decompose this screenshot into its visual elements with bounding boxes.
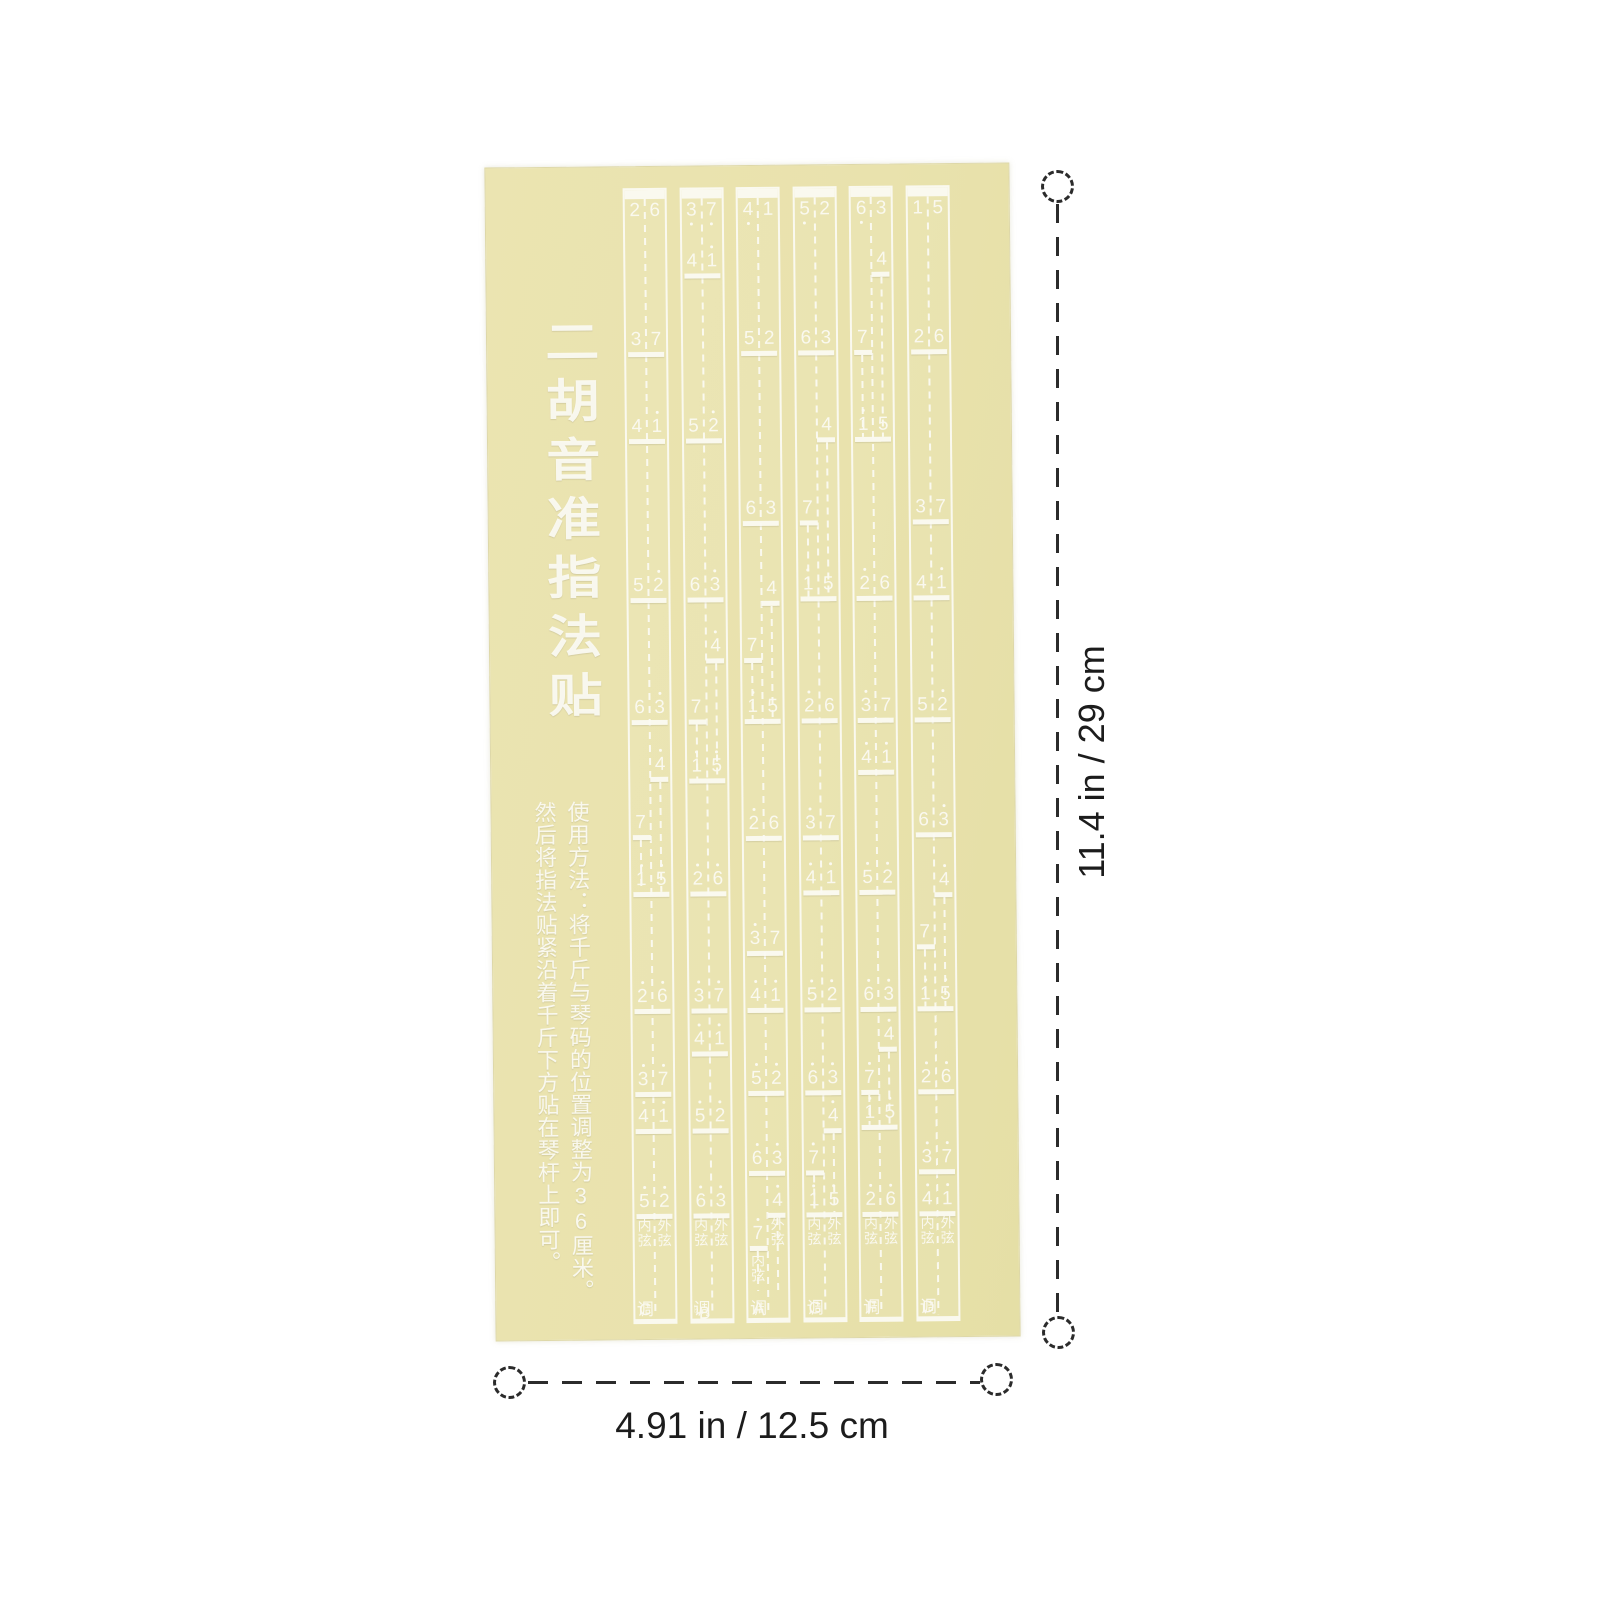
note-number: 6 [881, 1190, 901, 1210]
position-bar [746, 836, 782, 841]
note-number: 4 [627, 417, 647, 437]
note-row: 26 [861, 1190, 901, 1210]
octave-dot [661, 981, 664, 984]
note-row: 37 [633, 1070, 673, 1090]
note-number: 4 [767, 1191, 787, 1211]
note-row: 37 [911, 497, 951, 517]
position-bar [919, 1169, 955, 1174]
string-label-outer-text: 外弦 [881, 1216, 901, 1246]
fingering-strip-6: 1526374152634715263741内弦外弦D调 [906, 185, 961, 1321]
note-number: 6 [747, 1149, 767, 1169]
octave-dot [774, 980, 777, 983]
string-label-outer-text: 外弦 [824, 1216, 844, 1246]
string-label-outer-text: 外弦 [711, 1217, 731, 1247]
position-bar [918, 1089, 954, 1094]
position-bar [635, 1092, 671, 1097]
octave-dot [888, 1097, 891, 1100]
octave-dot [697, 981, 700, 984]
note-row: 4 [859, 1025, 899, 1045]
position-bar [747, 951, 783, 956]
string-label-outer-text: 外弦 [654, 1218, 674, 1248]
position-bar [691, 1051, 727, 1056]
fingering-strip-4: 5263471526374152634715内弦外弦G调 [792, 186, 847, 1322]
note-number: 1 [631, 870, 651, 890]
note-number: 2 [822, 985, 842, 1005]
note-number: 7 [931, 497, 951, 517]
string-label-inner-text: 内弦 [861, 1216, 881, 1246]
note-number: 2 [710, 1106, 730, 1126]
note-number: 4 [823, 1106, 843, 1126]
note-number: 3 [911, 497, 931, 517]
note-number: 3 [745, 929, 765, 949]
position-bar [911, 349, 947, 354]
note-row: 63 [747, 1149, 787, 1169]
note-number: 7 [748, 1224, 768, 1244]
octave-dot [752, 808, 755, 811]
note-row: 15 [915, 984, 955, 1004]
dimension-endpoint-circle-left [493, 1366, 526, 1399]
octave-dot [887, 979, 890, 982]
position-bar [745, 719, 781, 724]
note-number: 7 [701, 200, 721, 220]
note-number: 3 [823, 1068, 843, 1088]
note-number: 4 [738, 200, 758, 220]
note-row: 41 [682, 251, 722, 271]
octave-dot [658, 749, 661, 752]
note-number: 2 [703, 416, 723, 436]
note-number: 6 [819, 696, 839, 716]
note-number: 7 [937, 1147, 957, 1167]
octave-dot [810, 979, 813, 982]
string-label-outer-text: 外弦 [768, 1217, 788, 1247]
note-number: 3 [856, 696, 876, 716]
octave-dot [756, 1218, 759, 1221]
position-bar [860, 890, 896, 895]
key-suffix: 调 [635, 1300, 655, 1320]
note-number: 1 [702, 251, 722, 271]
note-number: 2 [861, 1190, 881, 1210]
note-number: 3 [871, 199, 891, 219]
position-bar [690, 891, 726, 896]
note-number: 5 [746, 1069, 766, 1089]
note-number: 2 [855, 574, 875, 594]
width-dimension-line [528, 1381, 980, 1384]
qianjin-header-bar [738, 189, 778, 198]
note-number: 2 [654, 1192, 674, 1212]
octave-dot [868, 1097, 871, 1100]
note-number: 2 [932, 695, 952, 715]
note-number: 2 [688, 869, 708, 889]
note-row: 15 [804, 1190, 844, 1210]
note-number: 4 [872, 250, 892, 270]
string-label-inner-text: 内弦 [634, 1218, 654, 1248]
position-bar [686, 438, 722, 443]
octave-dot [867, 979, 870, 982]
note-row: 4 [914, 870, 954, 890]
sticker-sheet: 二胡音准指法贴 使用方法：将千斤与琴码的位置调整为36厘米。 然后将指法贴紧沿着… [484, 163, 1020, 1342]
note-number: 2 [625, 201, 645, 221]
octave-dot [657, 570, 660, 573]
note-number: 6 [796, 328, 816, 348]
note-number: 2 [766, 1069, 786, 1089]
note-number: 3 [761, 499, 781, 519]
note-number: 7 [709, 986, 729, 1006]
position-bar [749, 1171, 785, 1176]
key-label: ♭B调 [692, 1299, 732, 1319]
note-number: 7 [631, 813, 651, 833]
note-number: 5 [707, 756, 727, 776]
note-row: 63 [741, 499, 781, 519]
note-row: 63 [629, 698, 669, 718]
instructions-line-1: 使用方法：将千斤与琴码的位置调整为36厘米。 [560, 801, 598, 1313]
note-number: 7 [653, 1070, 673, 1090]
note-number: 6 [708, 869, 728, 889]
note-number: 4 [817, 415, 837, 435]
note-number: 4 [879, 1025, 899, 1045]
note-number: 6 [741, 499, 761, 519]
note-number: 1 [758, 200, 778, 220]
position-bar [800, 596, 836, 601]
string-label-inner-text: 内弦 [804, 1216, 824, 1246]
position-bar [913, 519, 949, 524]
note-number: 1 [853, 415, 873, 435]
string-label-inner-text: 内弦 [748, 1253, 768, 1283]
octave-dot [755, 1063, 758, 1066]
note-number: 1 [931, 573, 951, 593]
note-number: 3 [800, 813, 820, 833]
note-number: 3 [681, 200, 701, 220]
octave-dot [718, 1100, 721, 1103]
string-label-outer: 外弦 [768, 1217, 788, 1259]
octave-dot [926, 1183, 929, 1186]
note-row: 7 [797, 498, 837, 518]
note-row: 4 [747, 1191, 787, 1211]
string-label-outer-text: 外弦 [937, 1215, 957, 1245]
octave-dot [830, 979, 833, 982]
note-row: 52 [746, 1069, 786, 1089]
note-row: 26 [744, 814, 784, 834]
position-bar [916, 832, 952, 837]
note-number: 1 [876, 748, 896, 768]
note-number: 3 [767, 1149, 787, 1169]
position-bar [858, 718, 894, 723]
note-number: 2 [799, 696, 819, 716]
height-dimension-label: 11.4 in / 29 cm [1071, 592, 1111, 932]
position-bar [692, 1128, 728, 1133]
note-number: 5 [935, 984, 955, 1004]
octave-dot [698, 1101, 701, 1104]
note-row: 7 [686, 697, 726, 717]
note-row: 15 [860, 1103, 900, 1123]
note-number: 4 [856, 748, 876, 768]
note-number: 5 [873, 415, 893, 435]
octave-dot [699, 1186, 702, 1189]
position-bar [748, 1008, 784, 1013]
octave-dot [831, 1062, 834, 1065]
key-label: G调 [805, 1298, 845, 1318]
note-number: 5 [763, 697, 783, 717]
octave-dot [832, 1100, 835, 1103]
octave-dot [889, 1184, 892, 1187]
position-bar [748, 1091, 784, 1096]
octave-dot [812, 1142, 815, 1145]
note-number: 7 [852, 328, 872, 348]
octave-dot [710, 245, 713, 248]
octave-dot [775, 1143, 778, 1146]
key-label: D调 [918, 1297, 958, 1317]
position-bar [687, 597, 723, 602]
octave-dot [715, 750, 718, 753]
octave-dot [925, 1141, 928, 1144]
key-label: C调 [635, 1300, 675, 1320]
note-row: 26 [799, 696, 839, 716]
position-bar [801, 718, 837, 723]
octave-dot [658, 692, 661, 695]
octave-dot [943, 864, 946, 867]
note-row: 52 [683, 416, 723, 436]
position-bar [634, 1009, 670, 1014]
note-number: 4 [911, 573, 931, 593]
octave-dot [886, 862, 889, 865]
note-number: 4 [745, 986, 765, 1006]
key-label: A调 [748, 1299, 788, 1319]
qianjin-header-bar [851, 188, 891, 197]
string-label-inner: 内弦 [804, 1216, 824, 1258]
note-number: 4 [705, 636, 725, 656]
position-bar [803, 835, 839, 840]
note-number: 3 [711, 1191, 731, 1211]
open-string-notes: 41 [738, 200, 778, 220]
octave-dot [695, 751, 698, 754]
position-bar [917, 1006, 953, 1011]
octave-dot [809, 807, 812, 810]
note-number: 6 [645, 201, 665, 221]
note-number: 5 [824, 1190, 844, 1210]
octave-dot [803, 221, 806, 224]
position-bar [861, 1007, 897, 1012]
note-row: 4 [797, 415, 837, 435]
note-number: 1 [743, 697, 763, 717]
note-number: 2 [909, 327, 929, 347]
note-number: 5 [628, 576, 648, 596]
dimension-endpoint-circle-right [980, 1363, 1013, 1396]
dimension-endpoint-circle-top [1041, 170, 1074, 203]
note-number: 1 [915, 984, 935, 1004]
note-number: 6 [859, 985, 879, 1005]
position-bar [915, 717, 951, 722]
note-number: 3 [879, 985, 899, 1005]
string-label-inner: 内弦 [634, 1218, 654, 1260]
octave-dot [698, 1024, 701, 1027]
note-number: 5 [690, 1106, 710, 1126]
octave-dot [941, 689, 944, 692]
position-bar [741, 351, 777, 356]
qianjin-header-bar [681, 189, 721, 198]
position-bar [798, 350, 834, 355]
note-row: 52 [690, 1106, 730, 1126]
note-number: 3 [917, 1147, 937, 1167]
note-number: 6 [652, 987, 672, 1007]
octave-dot [755, 1143, 758, 1146]
note-row: 63 [796, 328, 836, 348]
note-number: 4 [650, 755, 670, 775]
usage-instructions: 使用方法：将千斤与琴码的位置调整为36厘米。 然后将指法贴紧沿着千斤下方贴在琴杆… [527, 801, 598, 1314]
key-suffix: 调 [748, 1299, 768, 1319]
octave-dot [868, 1062, 871, 1065]
note-row: 4 [630, 755, 670, 775]
note-row: 26 [632, 987, 672, 1007]
open-string-notes: 63 [851, 199, 891, 219]
string-label-inner: 内弦 [861, 1216, 881, 1258]
note-number: 4 [689, 1029, 709, 1049]
octave-dot [860, 221, 863, 224]
string-label-inner-text: 内弦 [917, 1215, 937, 1245]
octave-dot [655, 411, 658, 414]
note-row: 41 [911, 573, 951, 593]
note-row: 41 [745, 986, 785, 1006]
position-bar [691, 1008, 727, 1013]
position-bar [862, 1125, 898, 1130]
note-row: 15 [743, 697, 783, 717]
note-row: 7 [859, 1068, 899, 1088]
position-bar [914, 595, 950, 600]
octave-dot [716, 863, 719, 866]
octave-dot [712, 410, 715, 413]
note-row: 37 [856, 696, 896, 716]
key-suffix: 调 [692, 1299, 712, 1319]
note-row: 15 [687, 756, 727, 776]
octave-dot [776, 1185, 779, 1188]
note-number: 6 [629, 698, 649, 718]
octave-dot [714, 630, 717, 633]
octave-dot [641, 1064, 644, 1067]
note-row: 63 [914, 810, 954, 830]
note-number: 3 [934, 810, 954, 830]
note-number: 5 [928, 198, 948, 218]
note-row: 7 [804, 1148, 844, 1168]
note-number: 6 [803, 1068, 823, 1088]
octave-dot [863, 568, 866, 571]
fingering-strip-5: 6347152637415263471526内弦外弦F调 [849, 186, 904, 1322]
note-row: 26 [688, 869, 728, 889]
octave-dot [718, 1023, 721, 1026]
note-number: 6 [875, 574, 895, 594]
note-row: 26 [855, 574, 895, 594]
octave-dot [717, 980, 720, 983]
position-bar [632, 720, 668, 725]
note-row: 26 [916, 1067, 956, 1087]
position-bar [805, 1090, 841, 1095]
instructions-line-2: 然后将指法贴紧沿着千斤下方贴在琴杆上即可。 [527, 801, 565, 1313]
product-photo: 二胡音准指法贴 使用方法：将千斤与琴码的位置调整为36厘米。 然后将指法贴紧沿着… [0, 0, 1600, 1600]
note-number: 1 [908, 198, 928, 218]
octave-dot [829, 862, 832, 865]
note-row: 52 [858, 868, 898, 888]
note-number: 5 [880, 1103, 900, 1123]
note-number: 1 [860, 1103, 880, 1123]
note-row: 4 [685, 636, 725, 656]
position-bar [628, 352, 664, 357]
note-row: 7 [631, 813, 671, 833]
string-label-outer: 外弦 [654, 1218, 674, 1260]
fingering-strip-1: 2637415263471526374152内弦外弦C调 [623, 188, 678, 1324]
octave-dot [690, 223, 693, 226]
note-number: 1 [653, 1107, 673, 1127]
note-row: 63 [803, 1068, 843, 1088]
octave-dot [660, 864, 663, 867]
note-row: 37 [689, 986, 729, 1006]
position-bar [803, 890, 839, 895]
note-number: 7 [797, 498, 817, 518]
note-number: 1 [687, 756, 707, 776]
fingering-strip-2: 3741526347152637415263内弦外弦♭B调 [679, 187, 734, 1323]
note-number: 4 [762, 579, 782, 599]
note-row: 63 [691, 1191, 731, 1211]
product-title-vertical: 二胡音准指法贴 [529, 317, 611, 759]
string-label-outer: 外弦 [937, 1215, 957, 1257]
position-bar [684, 273, 720, 278]
note-row: 37 [800, 813, 840, 833]
note-number: 5 [739, 329, 759, 349]
note-number: 5 [802, 985, 822, 1005]
note-row: 41 [801, 868, 841, 888]
octave-dot [713, 569, 716, 572]
note-number: 7 [876, 696, 896, 716]
open-string-notes: 52 [794, 199, 834, 219]
note-number: 5 [858, 868, 878, 888]
octave-dot [662, 1101, 665, 1104]
string-label-outer: 外弦 [881, 1216, 901, 1258]
position-bar [743, 521, 779, 526]
qianjin-header-bar [908, 187, 948, 196]
key-suffix: 调 [918, 1297, 938, 1317]
note-number: 7 [646, 330, 666, 350]
note-row: 15 [798, 574, 838, 594]
octave-dot [946, 1183, 949, 1186]
note-row: 41 [917, 1189, 957, 1209]
note-row: 15 [853, 415, 893, 435]
octave-dot [832, 1184, 835, 1187]
octave-dot [661, 1064, 664, 1067]
qianjin-header-bar [794, 188, 834, 197]
note-number: 5 [651, 870, 671, 890]
octave-dot [942, 804, 945, 807]
note-number: 1 [647, 417, 667, 437]
octave-dot [663, 1186, 666, 1189]
octave-dot [753, 923, 756, 926]
string-label-outer: 外弦 [711, 1217, 731, 1259]
note-row: 41 [633, 1107, 673, 1127]
note-row: 52 [802, 985, 842, 1005]
dimension-endpoint-circle-bottom [1042, 1316, 1075, 1349]
fingering-strips: 2637415263471526374152内弦外弦C调374152634715… [485, 164, 1008, 169]
octave-dot [944, 978, 947, 981]
note-row: 37 [745, 929, 785, 949]
note-number: 5 [634, 1192, 654, 1212]
position-bar [689, 778, 725, 783]
fingering-strip-3: 4152634715263741526347内弦外弦A调 [736, 187, 791, 1323]
note-number: 5 [912, 695, 932, 715]
note-row: 63 [685, 575, 725, 595]
octave-dot [751, 691, 754, 694]
note-number: 2 [814, 199, 834, 219]
note-row: 41 [856, 748, 896, 768]
octave-dot [885, 742, 888, 745]
octave-dot [940, 567, 943, 570]
octave-dot [719, 1185, 722, 1188]
note-row: 37 [917, 1147, 957, 1167]
octave-dot [865, 742, 868, 745]
